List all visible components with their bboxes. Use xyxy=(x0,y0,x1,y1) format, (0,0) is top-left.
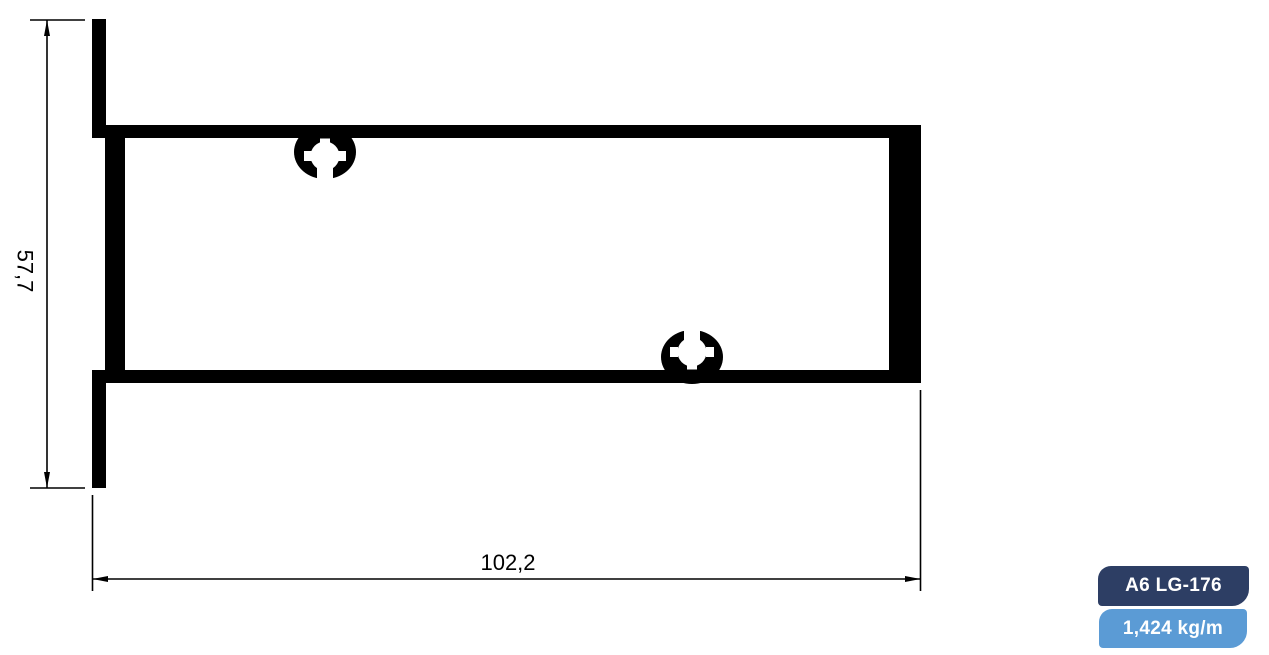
screw-port-bottom-notch-right xyxy=(706,347,714,357)
profile-section xyxy=(92,19,921,488)
screw-port-top-slot xyxy=(317,156,333,187)
profile-code-badge: A6 LG-176 xyxy=(1098,566,1249,606)
vertical-dimension-arrow-down xyxy=(44,472,50,488)
profile-technical-drawing: 57,7 102,2 xyxy=(0,0,1269,655)
profile-top-flange xyxy=(105,125,921,138)
screw-port-bottom xyxy=(661,321,723,384)
horizontal-dimension-arrow-left xyxy=(93,576,109,582)
profile-top-fin xyxy=(92,19,106,138)
profile-left-wall xyxy=(105,125,125,383)
drawing-canvas: 57,7 102,2 A6 LG-176 1,424 kg/m xyxy=(0,0,1269,655)
horizontal-dimension-arrow-right xyxy=(905,576,921,582)
profile-code-label: A6 LG-176 xyxy=(1125,575,1222,597)
screw-port-top-notch-left xyxy=(304,151,312,161)
screw-port-top-notch-up xyxy=(320,139,330,146)
profile-right-wall xyxy=(889,125,921,383)
horizontal-dimension-label: 102,2 xyxy=(480,550,535,575)
screw-port-top xyxy=(294,125,356,187)
vertical-dimension-arrow-up xyxy=(44,20,50,36)
profile-bottom-fin xyxy=(92,370,106,488)
weight-badge: 1,424 kg/m xyxy=(1099,609,1247,648)
screw-port-bottom-slot xyxy=(684,321,700,352)
screw-port-top-notch-right xyxy=(338,151,346,161)
screw-port-bottom-notch-down xyxy=(687,363,697,370)
weight-label: 1,424 kg/m xyxy=(1123,618,1223,640)
screw-port-bottom-notch-left xyxy=(670,347,678,357)
profile-bottom-flange xyxy=(105,370,921,383)
vertical-dimension-label: 57,7 xyxy=(13,250,38,293)
